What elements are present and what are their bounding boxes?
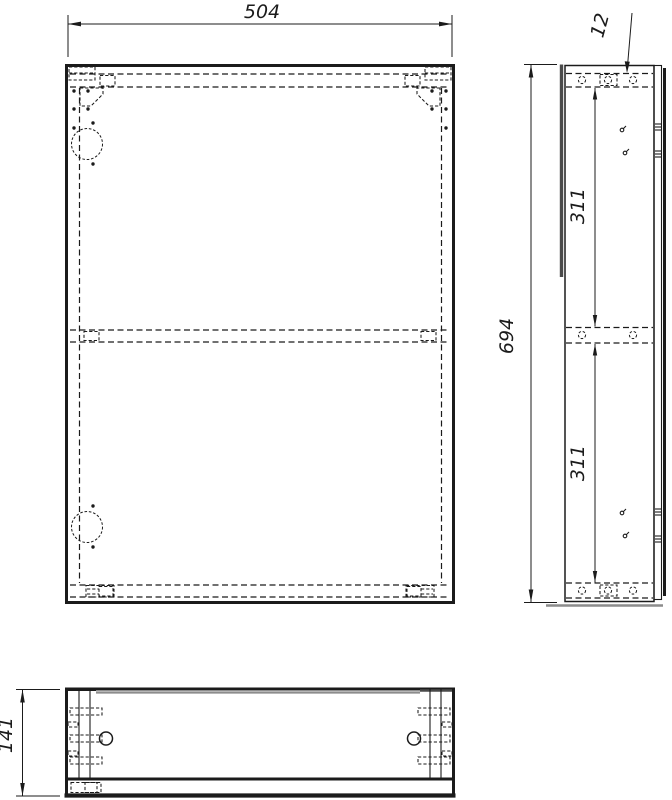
- dim-lower-spacing-label: 311: [567, 445, 589, 481]
- dimension-depth: 141: [0, 690, 60, 797]
- side-view: [546, 65, 665, 606]
- bottom-view: [65, 689, 456, 796]
- side-view-outline: [565, 66, 654, 602]
- right-dowel-slots: [418, 708, 452, 764]
- bottom-left-corner-fitting: [86, 586, 114, 598]
- dim-depth-label: 141: [0, 717, 17, 753]
- dimension-upper-shelf-spacing: 311: [567, 88, 597, 327]
- technical-drawing-canvas: 504: [0, 0, 672, 800]
- door-panel-plan: [65, 779, 456, 796]
- front-view: [67, 66, 454, 603]
- top-right-corner-fitting: [417, 67, 451, 130]
- top-hinge-cup: [72, 121, 103, 165]
- middle-shelf-section: [566, 328, 653, 344]
- bottom-panel-section: [566, 583, 653, 598]
- bottom-hinge-cup: [72, 504, 103, 548]
- left-dowel-slots: [68, 708, 102, 764]
- bottom-view-outline: [67, 689, 454, 779]
- dim-height-label: 694: [496, 318, 518, 354]
- dimension-height: 694: [496, 65, 557, 603]
- dim-upper-spacing-label: 311: [567, 188, 589, 224]
- dim-thickness-label: 12: [586, 11, 614, 40]
- bottom-right-corner-fitting: [406, 586, 434, 598]
- dim-width-label: 504: [244, 1, 280, 23]
- dimension-lower-shelf-spacing: 311: [567, 344, 597, 583]
- screw-marks: [620, 126, 629, 538]
- left-hole: [100, 732, 113, 745]
- top-panel-section: [566, 74, 653, 88]
- dimension-panel-thickness: 12: [586, 11, 632, 73]
- dimension-width: 504: [68, 1, 452, 57]
- top-left-corner-fitting: [69, 67, 103, 130]
- cabinet-drawing: 504: [0, 0, 672, 800]
- right-hole: [408, 732, 421, 745]
- front-view-outline: [67, 66, 454, 603]
